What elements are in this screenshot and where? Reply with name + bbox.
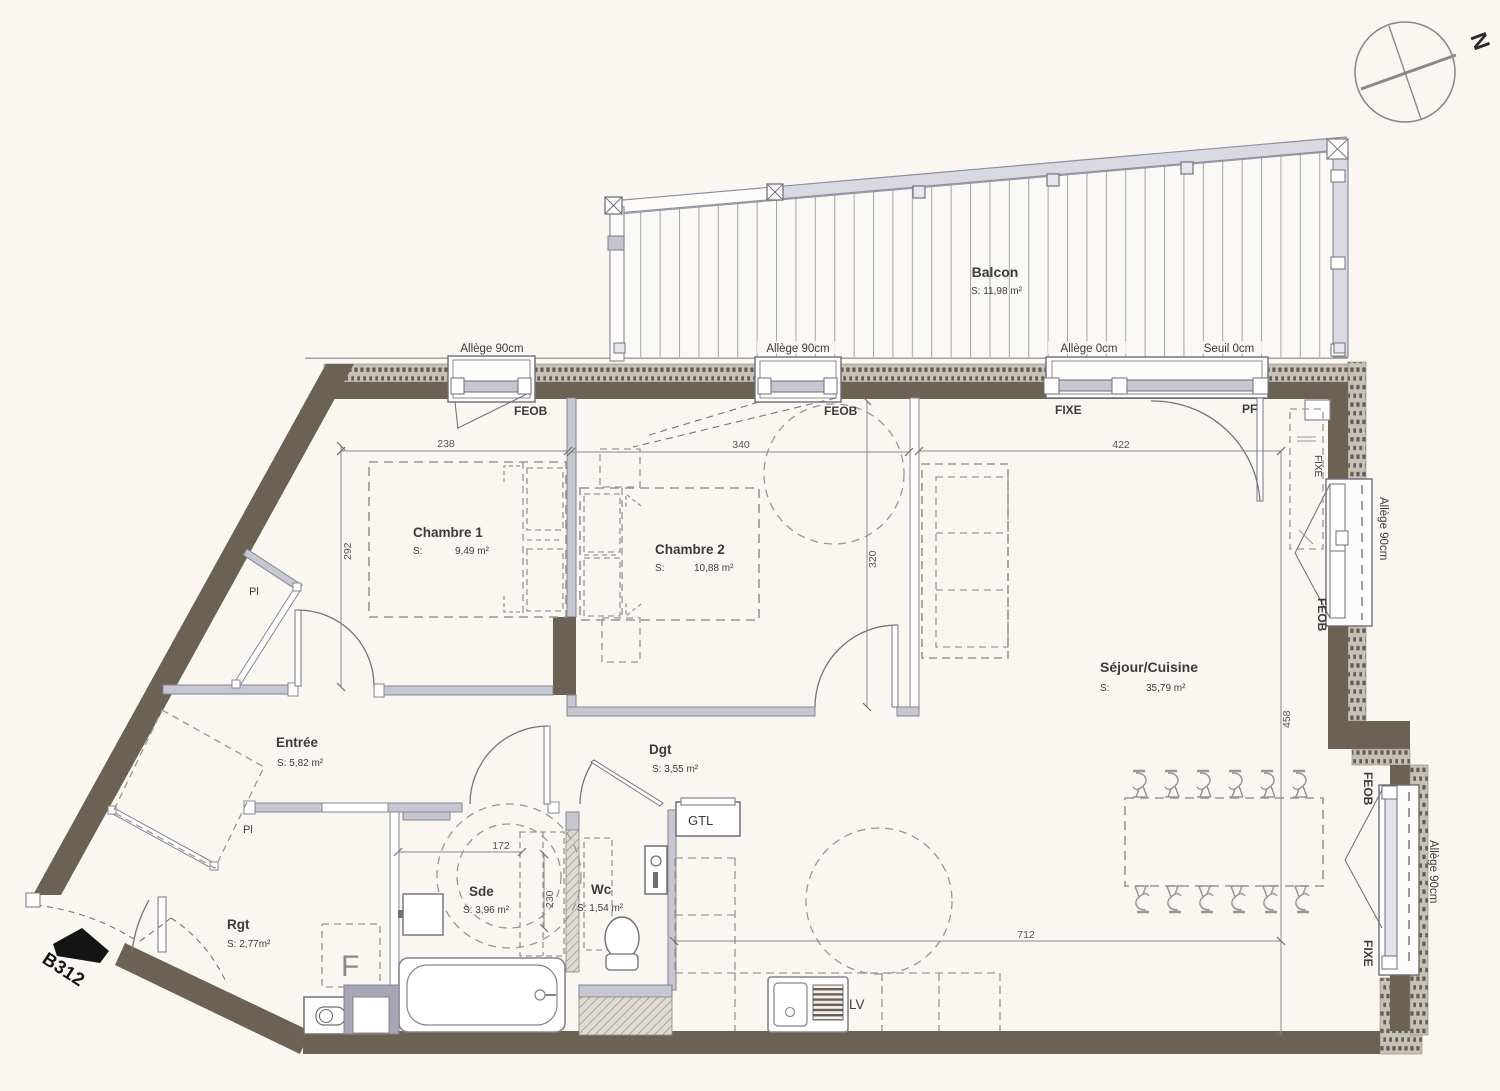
svg-text:F: F [341,950,359,983]
svg-text:S: 11,98 m²: S: 11,98 m² [971,286,1023,297]
svg-text:GTL: GTL [688,813,713,828]
svg-text:FIXE: FIXE [1055,403,1082,417]
svg-text:Séjour/Cuisine: Séjour/Cuisine [1100,659,1198,675]
svg-text:Allège 90cm: Allège 90cm [460,343,523,355]
svg-text:FEOB: FEOB [1315,598,1329,632]
svg-text:10,88 m²: 10,88 m² [694,563,734,574]
svg-text:S:: S: [1100,683,1109,694]
svg-text:Dgt: Dgt [649,742,672,757]
svg-text:LV: LV [849,997,865,1012]
svg-text:422: 422 [1112,439,1130,451]
svg-text:172: 172 [492,840,510,852]
svg-text:Sde: Sde [469,884,494,899]
svg-text:S:: S: [413,546,422,557]
svg-text:FEOB: FEOB [824,404,858,418]
svg-text:Entrée: Entrée [276,735,319,750]
svg-text:238: 238 [437,438,455,450]
svg-text:292: 292 [342,542,354,560]
svg-text:Wc: Wc [591,882,612,897]
svg-text:Allège 0cm: Allège 0cm [1061,343,1118,355]
svg-text:FIXE: FIXE [1312,455,1323,478]
svg-text:PF: PF [1242,402,1257,416]
svg-text:FEOB: FEOB [514,404,548,418]
svg-text:Allège 90cm: Allège 90cm [766,343,829,355]
svg-text:320: 320 [867,550,879,568]
svg-text:S: 1,54 m²: S: 1,54 m² [577,903,624,914]
svg-text:230: 230 [544,890,556,908]
svg-text:Allège 90cm: Allège 90cm [1377,497,1389,560]
svg-text:Chambre 2: Chambre 2 [655,542,725,557]
svg-text:S: 5,82 m²: S: 5,82 m² [277,758,324,769]
svg-text:340: 340 [732,439,750,451]
svg-text:FEOB: FEOB [1361,772,1375,806]
svg-text:Seuil 0cm: Seuil 0cm [1204,343,1255,355]
svg-text:S: 3,55 m²: S: 3,55 m² [652,764,699,775]
svg-text:S: 2,77m²: S: 2,77m² [227,939,271,950]
svg-text:Balcon: Balcon [972,264,1019,280]
svg-text:FIXE: FIXE [1361,940,1375,967]
svg-text:Chambre 1: Chambre 1 [413,525,483,540]
svg-text:S:: S: [655,563,664,574]
svg-text:Pl: Pl [249,586,259,598]
svg-text:Pl: Pl [243,824,253,836]
svg-text:Rgt: Rgt [227,917,250,932]
svg-text:Allège 90cm: Allège 90cm [1427,840,1439,903]
svg-text:35,79 m²: 35,79 m² [1146,683,1186,694]
svg-text:9,49 m²: 9,49 m² [455,546,490,557]
svg-text:458: 458 [1281,710,1293,728]
svg-text:S: 3,96 m²: S: 3,96 m² [463,905,510,916]
svg-text:712: 712 [1017,929,1035,941]
